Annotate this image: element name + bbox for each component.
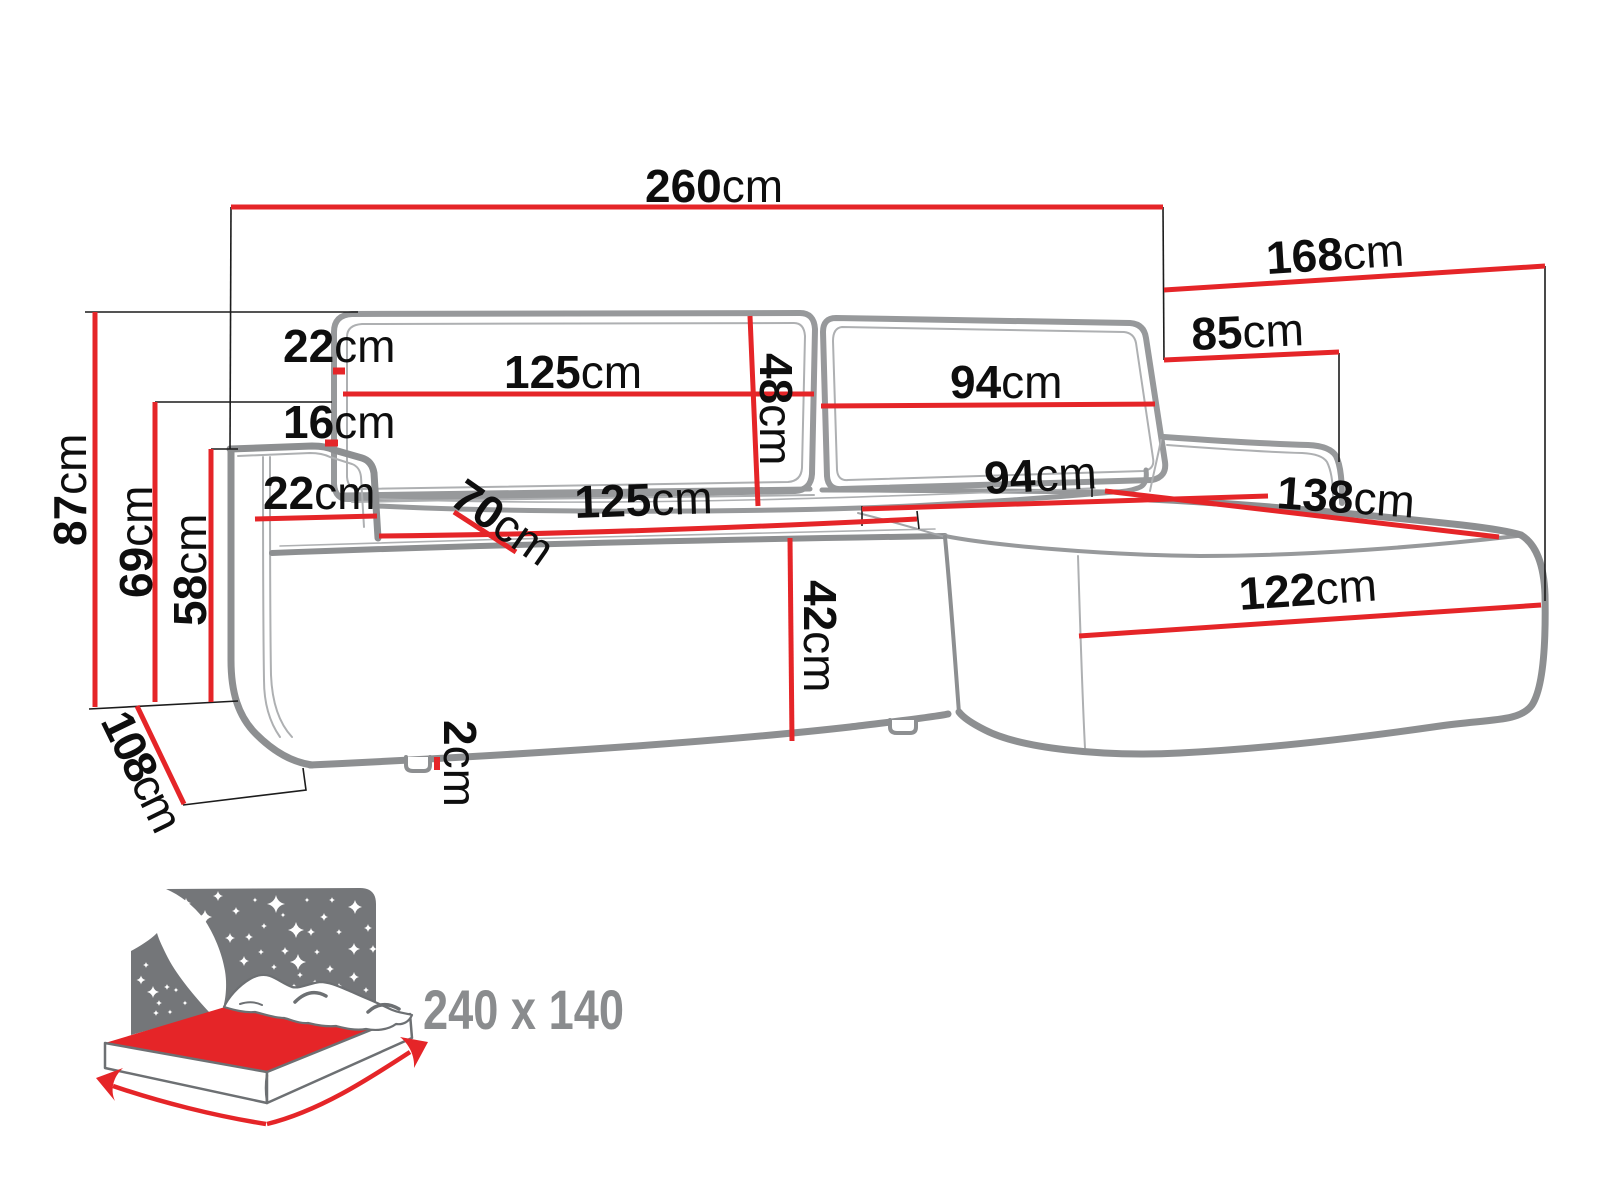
- svg-text:260cm: 260cm: [645, 160, 783, 212]
- svg-text:138cm: 138cm: [1275, 466, 1416, 528]
- svg-text:22cm: 22cm: [283, 320, 396, 372]
- svg-text:168cm: 168cm: [1264, 224, 1405, 284]
- svg-text:16cm: 16cm: [283, 396, 396, 448]
- svg-text:48cm: 48cm: [750, 353, 802, 466]
- svg-text:125cm: 125cm: [574, 471, 714, 528]
- svg-text:94cm: 94cm: [983, 446, 1098, 504]
- svg-text:87cm: 87cm: [44, 434, 96, 547]
- svg-text:42cm: 42cm: [794, 580, 846, 693]
- svg-text:122cm: 122cm: [1237, 558, 1378, 620]
- svg-text:22cm: 22cm: [263, 467, 376, 519]
- svg-text:94cm: 94cm: [950, 356, 1063, 408]
- svg-text:85cm: 85cm: [1190, 303, 1305, 360]
- svg-text:2cm: 2cm: [434, 720, 486, 807]
- svg-text:58cm: 58cm: [164, 514, 216, 627]
- svg-text:125cm: 125cm: [504, 346, 642, 398]
- svg-text:240 x 140: 240 x 140: [423, 978, 624, 1041]
- svg-text:69cm: 69cm: [110, 486, 162, 599]
